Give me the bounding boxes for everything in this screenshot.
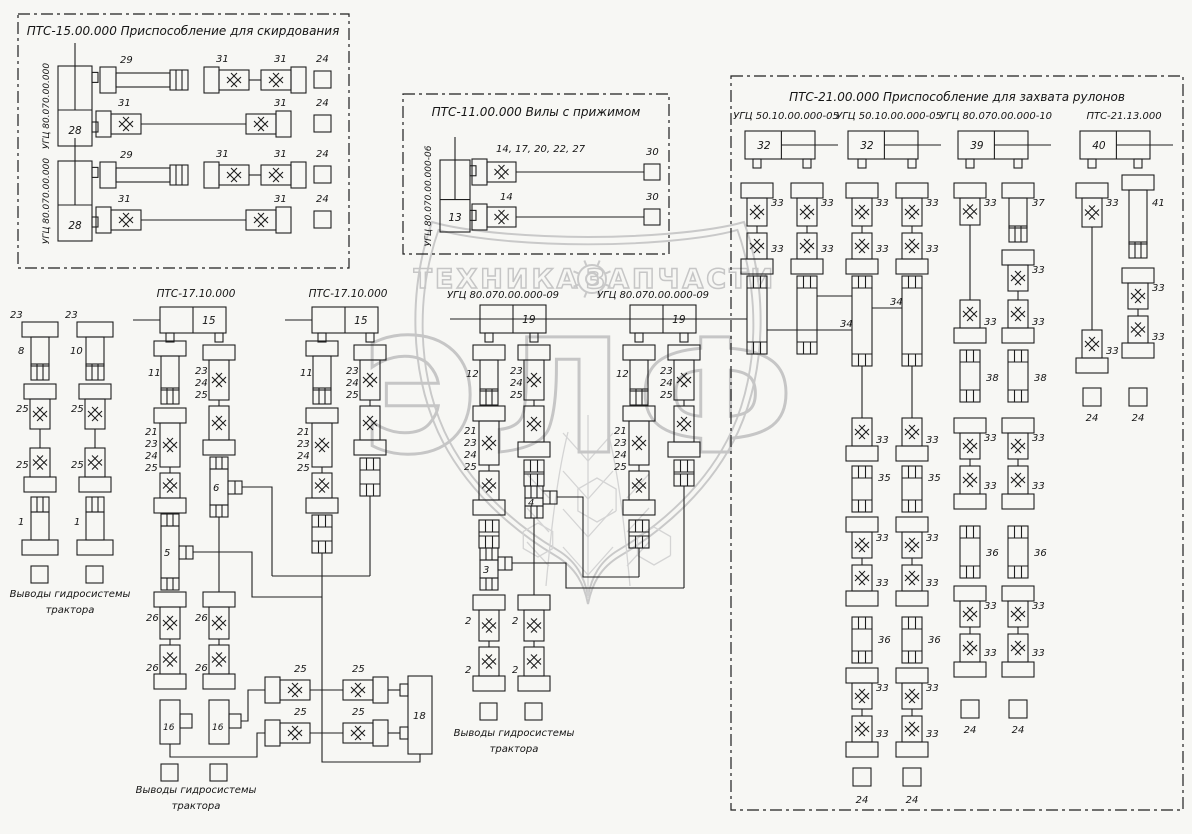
svg-text:4: 4 [528,498,534,509]
sym-text: 25 [352,664,365,675]
sym-line [241,690,265,721]
svg-text:24: 24 [1132,413,1145,424]
cylinder-15a: 15 [133,307,226,342]
svg-text:21: 21 [464,426,477,437]
svg-text:35: 35 [878,473,891,484]
sym-text: 33 [876,244,889,255]
sym-vhose [846,716,878,757]
sym-vhose [954,418,986,459]
sym-text: 25 [464,462,477,473]
svg-text:трактора: трактора [172,801,221,812]
caption-ugc-50-2: УГЦ 50.10.00.000-05 [836,111,942,122]
svg-text:6: 6 [213,483,219,494]
svg-text:33: 33 [1032,265,1045,276]
svg-text:31: 31 [274,194,287,205]
svg-text:ПТС-21.13.000: ПТС-21.13.000 [1086,111,1161,122]
svg-text:33: 33 [984,198,997,209]
svg-text:ПТС-17.10.000: ПТС-17.10.000 [309,288,388,300]
svg-text:31: 31 [216,149,229,160]
sym-text: 33 [1106,346,1119,357]
sym-coup [852,617,872,663]
sym-text: 26 [195,613,208,624]
svg-text:23: 23 [346,366,359,377]
svg-text:36: 36 [928,635,941,646]
sym-vhose [154,408,186,467]
sym-vhose [846,517,878,558]
sym-sq [86,566,103,583]
sym-text: 21 [464,426,477,437]
sym-text: 23 [346,366,359,377]
sym-vhose [896,418,928,461]
sym-text: 33 [1032,433,1045,444]
svg-text:24: 24 [464,450,477,461]
sym-sq [161,764,178,781]
svg-text:33: 33 [926,533,939,544]
sym-vhose [896,183,928,226]
svg-text:33: 33 [771,198,784,209]
sym-text: 2 [465,665,471,676]
sym-text: 38 [986,373,999,384]
sym-text: 24 [906,795,919,806]
sym-sq [903,768,921,786]
caption-ugc-50-1: УГЦ 50.10.00.000-05 [733,111,839,122]
sym-vhose [79,448,111,492]
svg-text:ПТС-17.10.000: ПТС-17.10.000 [157,288,236,300]
sym-text: 30 [646,147,659,158]
sym-vhose [846,233,878,274]
sym-coup [852,466,872,512]
sym-text: 33 [984,601,997,612]
sym-line [242,487,272,576]
sym-text: 23 [510,366,523,377]
sym-vhose [203,406,235,455]
title-pts-11: ПТС-11.00.000 Вилы с прижимом [432,105,641,119]
svg-text:24: 24 [145,451,158,462]
svg-text:33: 33 [1106,346,1119,357]
sym-vtube [22,322,58,380]
svg-text:13: 13 [448,212,461,224]
schematic-canvas: ТЕХНИКАЗАПЧАСТИЭЛФПТС-15.00.000 Приспосо… [0,0,1192,834]
svg-text:24: 24 [906,795,919,806]
sym-text: 35 [928,473,941,484]
sym-coup [960,350,980,402]
svg-text:33: 33 [926,578,939,589]
sym-text: 12 [466,369,479,380]
sym-line [322,576,420,762]
sym-vhose [1076,330,1108,373]
svg-text:19: 19 [672,314,686,326]
elbow-16b [209,700,241,744]
sym-text: 25 [294,664,307,675]
svg-text:33: 33 [876,198,889,209]
sym-sq [314,166,331,183]
svg-text:25: 25 [297,463,310,474]
sym-vhose [518,595,550,641]
svg-text:33: 33 [1032,648,1045,659]
sym-sq [314,71,331,88]
note-tractor-outputs-mid: Выводы гидросистемытрактора [136,785,257,812]
svg-text:40: 40 [1092,140,1106,152]
sym-hhose [204,67,249,93]
sym-text: 33 [984,198,997,209]
svg-text:УГЦ 80.070.00.000-09: УГЦ 80.070.00.000-09 [447,290,559,301]
svg-text:3: 3 [483,565,489,576]
sym-text: 24 [614,450,627,461]
sym-text: 36 [986,548,999,559]
svg-text:25: 25 [71,404,84,415]
svg-text:25: 25 [660,390,673,401]
sym-line [170,733,265,757]
sym-text: 23 [297,439,310,450]
sym-sq [1009,700,1027,718]
watermark: ТЕХНИКАЗАПЧАСТИЭЛФ [362,222,808,604]
svg-text:36: 36 [986,548,999,559]
sym-text: 23 [65,310,78,321]
sym-sq [210,764,227,781]
svg-text:25: 25 [294,664,307,675]
svg-text:1: 1 [74,517,80,528]
sym-vhose [954,183,986,225]
sym-sq [644,209,660,225]
sym-text: 31 [216,54,229,65]
sym-text: 26 [195,663,208,674]
sym-vhose [154,592,186,639]
svg-text:33: 33 [1032,317,1045,328]
sym-vhose [203,592,235,639]
svg-text:23: 23 [297,439,310,450]
sym-text: 33 [821,198,834,209]
sym-text: 12 [616,369,629,380]
svg-text:24: 24 [316,98,329,109]
svg-text:трактора: трактора [46,605,95,616]
sym-text: 24 [660,378,673,389]
sym-coup [852,276,872,366]
caption-ugc-80-10: УГЦ 80.070.00.000-10 [940,111,1052,122]
sym-text: 36 [928,635,941,646]
sym-text: 31 [216,149,229,160]
sym-text: 18 [413,711,426,722]
sym-vhose [306,473,338,513]
sym-vtube [77,497,113,555]
svg-text:34: 34 [840,319,853,330]
sym-coup [902,617,922,663]
sym-text: 24 [346,378,359,389]
sym-text: 25 [195,390,208,401]
svg-text:25: 25 [71,460,84,471]
svg-text:21: 21 [297,427,310,438]
sym-vhose [1002,418,1034,459]
svg-text:2: 2 [465,665,471,676]
sym-text: 24 [297,451,310,462]
svg-text:12: 12 [616,369,629,380]
svg-text:Выводы гидросистемы: Выводы гидросистемы [136,785,257,796]
svg-text:ПТС-21.00.000 Приспособление д: ПТС-21.00.000 Приспособление для захвата… [789,90,1125,104]
cylinder-28a: 28УГЦ 80.070.00.000 [42,43,98,149]
sym-vtube [1002,183,1034,242]
sym-text: 25 [294,707,307,718]
sym-text: 29 [120,55,133,66]
sym-text: 33 [926,533,939,544]
svg-text:33: 33 [926,683,939,694]
svg-text:30: 30 [646,147,659,158]
sym-text: 33 [1032,265,1045,276]
svg-text:41: 41 [1152,198,1165,209]
sym-vtube [1122,175,1154,258]
sym-text: 34 [890,297,903,308]
sym-text: 33 [821,244,834,255]
sym-coup [902,276,922,366]
svg-text:трактора: трактора [490,744,539,755]
sym-text: 33 [876,198,889,209]
sym-text: 33 [1152,283,1165,294]
svg-text:25: 25 [346,390,359,401]
note-tractor-outputs-left: Выводы гидросистемытрактора [10,589,131,616]
svg-text:33: 33 [926,244,939,255]
svg-text:15: 15 [202,315,216,327]
sym-coup [479,520,499,548]
svg-text:31: 31 [274,149,287,160]
svg-text:31: 31 [118,98,131,109]
caption-ugc-80-09b: УГЦ 80.070.00.000-09 [597,290,709,301]
sym-text: 23 [464,438,477,449]
sym-text: 23 [145,439,158,450]
sym-vhose [846,418,878,461]
svg-text:25: 25 [464,462,477,473]
svg-text:18: 18 [413,711,426,722]
svg-text:12: 12 [466,369,479,380]
svg-text:23: 23 [660,366,673,377]
title-pts-15: ПТС-15.00.000 Приспособление для скирдов… [27,24,340,38]
sym-text: 30 [646,192,659,203]
svg-text:УГЦ 80.070.00.000-09: УГЦ 80.070.00.000-09 [597,290,709,301]
sym-text: 33 [984,317,997,328]
sym-text: 36 [1034,548,1047,559]
tee-5: 5 [161,514,193,590]
sym-text: 24 [1086,413,1099,424]
sym-sq [1083,388,1101,406]
sym-text: 1 [18,517,24,528]
sym-text: 33 [926,244,939,255]
svg-text:33: 33 [821,198,834,209]
svg-text:33: 33 [1152,332,1165,343]
svg-text:33: 33 [984,433,997,444]
svg-text:34: 34 [890,297,903,308]
svg-text:5: 5 [164,548,170,559]
sym-vhose [896,233,928,274]
svg-text:24: 24 [614,450,627,461]
sym-text: 24 [464,450,477,461]
svg-text:24: 24 [316,194,329,205]
title-pts-17b: ПТС-17.10.000 [309,288,388,300]
svg-text:ПТС-15.00.000 Приспособление д: ПТС-15.00.000 Приспособление для скирдов… [27,24,340,38]
sym-hhose [96,207,141,233]
cylinder-39: 39 [958,131,1051,168]
sym-text: 23 [195,366,208,377]
svg-text:26: 26 [195,613,208,624]
sym-sq [314,115,331,132]
sym-text: 33 [984,481,997,492]
svg-text:24: 24 [316,54,329,65]
sym-text: 24 [510,378,523,389]
svg-text:26: 26 [146,663,159,674]
svg-text:25: 25 [145,463,158,474]
sym-vhose [473,595,505,641]
sym-text: 24 [964,725,977,736]
sym-coup [1008,526,1028,578]
svg-text:23: 23 [145,439,158,450]
sym-text: 37 [1032,198,1045,209]
sym-vhose [846,565,878,606]
sym-text: 24 [1012,725,1025,736]
sym-vhose [954,586,986,627]
sym-text: 33 [876,683,889,694]
svg-text:37: 37 [1032,198,1045,209]
sym-vhose [154,645,186,689]
sym-text: 33 [1152,332,1165,343]
sym-hhose [472,204,516,230]
svg-text:36: 36 [1034,548,1047,559]
svg-text:33: 33 [926,435,939,446]
sym-text: 33 [876,729,889,740]
sym-text: 2 [512,616,518,627]
svg-text:28: 28 [68,220,82,232]
caption-pts-21-13: ПТС-21.13.000 [1086,111,1161,122]
svg-text:26: 26 [195,663,208,674]
svg-text:33: 33 [1106,198,1119,209]
sym-text: 33 [926,198,939,209]
sym-text: 33 [1106,198,1119,209]
svg-text:24: 24 [316,149,329,160]
sym-vhose [1002,250,1034,291]
sym-sq [853,768,871,786]
sym-vhose [846,668,878,709]
svg-text:33: 33 [771,244,784,255]
sym-text: 33 [1032,317,1045,328]
sym-text: 29 [120,150,133,161]
svg-text:33: 33 [926,198,939,209]
sym-text: 25 [660,390,673,401]
tee-3: 3 [480,548,512,590]
sym-text: 33 [771,198,784,209]
sym-text: 25 [614,462,627,473]
sym-text: 33 [876,533,889,544]
svg-text:32: 32 [757,140,771,152]
sym-text: 23 [660,366,673,377]
sym-vhose [1002,586,1034,627]
svg-text:14: 14 [500,192,513,203]
svg-text:14, 17, 20, 22, 27: 14, 17, 20, 22, 27 [496,144,586,155]
svg-text:2: 2 [512,616,518,627]
sym-text: 8 [18,346,24,357]
sym-text: 33 [984,648,997,659]
sym-text: 25 [16,460,29,471]
svg-text:24: 24 [297,451,310,462]
tee-6: 6 [210,457,242,517]
sym-hhose [261,162,306,188]
svg-text:21: 21 [614,426,627,437]
sym-text: 25 [16,404,29,415]
cylinder-28b: 28УГЦ 80.070.00.000 [42,138,98,244]
svg-text:33: 33 [876,729,889,740]
svg-text:33: 33 [1032,433,1045,444]
sym-vhose [896,565,928,606]
sym-vhose [791,183,823,226]
svg-text:11: 11 [148,368,161,379]
sym-text: 10 [70,346,83,357]
sym-text: 33 [1032,648,1045,659]
sym-text: 26 [146,613,159,624]
svg-text:25: 25 [614,462,627,473]
sym-htube [100,162,188,188]
svg-text:25: 25 [294,707,307,718]
svg-text:24: 24 [346,378,359,389]
svg-text:29: 29 [120,55,133,66]
sym-text: 21 [297,427,310,438]
sym-vhose [954,300,986,343]
sym-vhose [954,634,986,677]
sym-vtube [22,497,58,555]
svg-text:24: 24 [1086,413,1099,424]
cylinder-32b: 32 [848,131,941,168]
sym-hhose [343,720,388,746]
sym-vhose [896,668,928,709]
svg-text:31: 31 [216,54,229,65]
sym-sq [644,164,660,180]
sym-text: 24 [145,451,158,462]
tee-4: 4 [525,486,557,518]
sym-vhose [896,517,928,558]
sym-sq [525,703,542,720]
sym-hhose [261,67,306,93]
sym-htube [100,67,188,93]
svg-text:39: 39 [970,140,984,152]
note-tractor-outputs-center: Выводы гидросистемытрактора [454,728,575,755]
cylinder-40: 40 [1080,131,1173,168]
sym-text: 33 [771,244,784,255]
sym-text: 14 [500,192,513,203]
sym-text: 16 [212,723,224,733]
svg-text:2: 2 [465,616,471,627]
sym-coup [312,515,332,553]
sym-vhose [154,473,186,513]
sym-vhose [954,466,986,509]
sym-text: 33 [1032,481,1045,492]
svg-text:10: 10 [70,346,83,357]
sym-vhose [473,647,505,691]
sym-text: 24 [195,378,208,389]
sym-text: 33 [876,578,889,589]
svg-text:33: 33 [876,683,889,694]
svg-text:25: 25 [510,390,523,401]
svg-text:25: 25 [16,404,29,415]
sym-text: 31 [274,54,287,65]
svg-text:23: 23 [510,366,523,377]
svg-text:23: 23 [65,310,78,321]
svg-text:25: 25 [352,707,365,718]
sym-text: 36 [878,635,891,646]
sym-vhose [306,408,338,467]
svg-text:23: 23 [195,366,208,377]
sym-hhose [246,207,291,233]
sym-sq [480,703,497,720]
sym-text: 2 [465,616,471,627]
svg-text:24: 24 [856,795,869,806]
sym-text: 38 [1034,373,1047,384]
sym-hhose [472,159,516,185]
svg-text:19: 19 [522,314,536,326]
sym-vhose [741,183,773,226]
sym-vhose [791,233,823,274]
